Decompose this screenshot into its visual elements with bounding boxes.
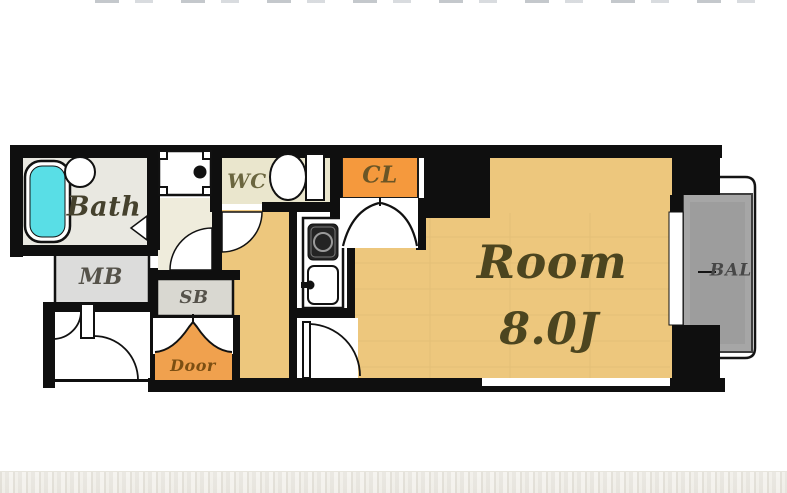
closet-doors bbox=[340, 197, 418, 248]
entrance-door-leaf bbox=[81, 304, 94, 338]
floor-plan-page: Bath MB WC CL SB Door Room 8.0J BAL bbox=[0, 0, 787, 493]
room-bottom-sill bbox=[482, 378, 670, 386]
bath-label: Bath bbox=[67, 194, 141, 221]
wc-label: WC bbox=[227, 171, 266, 191]
wall-under-bath bbox=[10, 245, 158, 256]
toilet-icon bbox=[270, 154, 324, 200]
wall-sb-top bbox=[150, 270, 240, 280]
wall-kitchen-left bbox=[289, 208, 297, 383]
wall-window-jamb bbox=[670, 195, 683, 212]
wall-pillar bbox=[424, 145, 490, 218]
main-room-upper bbox=[488, 153, 672, 213]
wall-mb-bottom bbox=[43, 302, 150, 312]
shoe-box-label: SB bbox=[179, 289, 208, 307]
main-entrance-door bbox=[53, 304, 138, 380]
room-size-label: 8.0J bbox=[499, 308, 598, 352]
entrance-door-swing-large bbox=[94, 336, 138, 380]
cropped-image-remnant-bottom bbox=[0, 471, 787, 493]
closet-label: CL bbox=[362, 164, 397, 187]
wall-top bbox=[10, 145, 722, 158]
floor-plan-drawing bbox=[0, 0, 787, 493]
balcony-window bbox=[669, 212, 683, 325]
stove-icon bbox=[308, 224, 338, 260]
wall-left bbox=[10, 145, 23, 257]
balcony-label: BAL bbox=[710, 263, 753, 280]
sink-icon bbox=[65, 157, 95, 187]
room-entry-door bbox=[297, 318, 360, 378]
wall-washroom-right bbox=[212, 198, 222, 272]
kitchen-fixtures bbox=[301, 218, 343, 308]
wall-kitchen-bottom bbox=[295, 308, 355, 318]
room-label: Room bbox=[477, 239, 627, 285]
wall-right-bottom bbox=[672, 325, 720, 392]
meter-box-label: MB bbox=[79, 266, 123, 288]
bathtub-water bbox=[30, 166, 65, 237]
entrance-label: Door bbox=[170, 358, 216, 374]
wall-right-top bbox=[672, 145, 720, 195]
washer-drain bbox=[194, 166, 207, 179]
wall-entry-threshold bbox=[45, 379, 150, 382]
entrance-door-swing-small bbox=[53, 311, 81, 339]
wall-entry-left bbox=[43, 302, 55, 388]
washer-pan-icon bbox=[159, 151, 211, 195]
room-door-leaf bbox=[303, 322, 310, 378]
